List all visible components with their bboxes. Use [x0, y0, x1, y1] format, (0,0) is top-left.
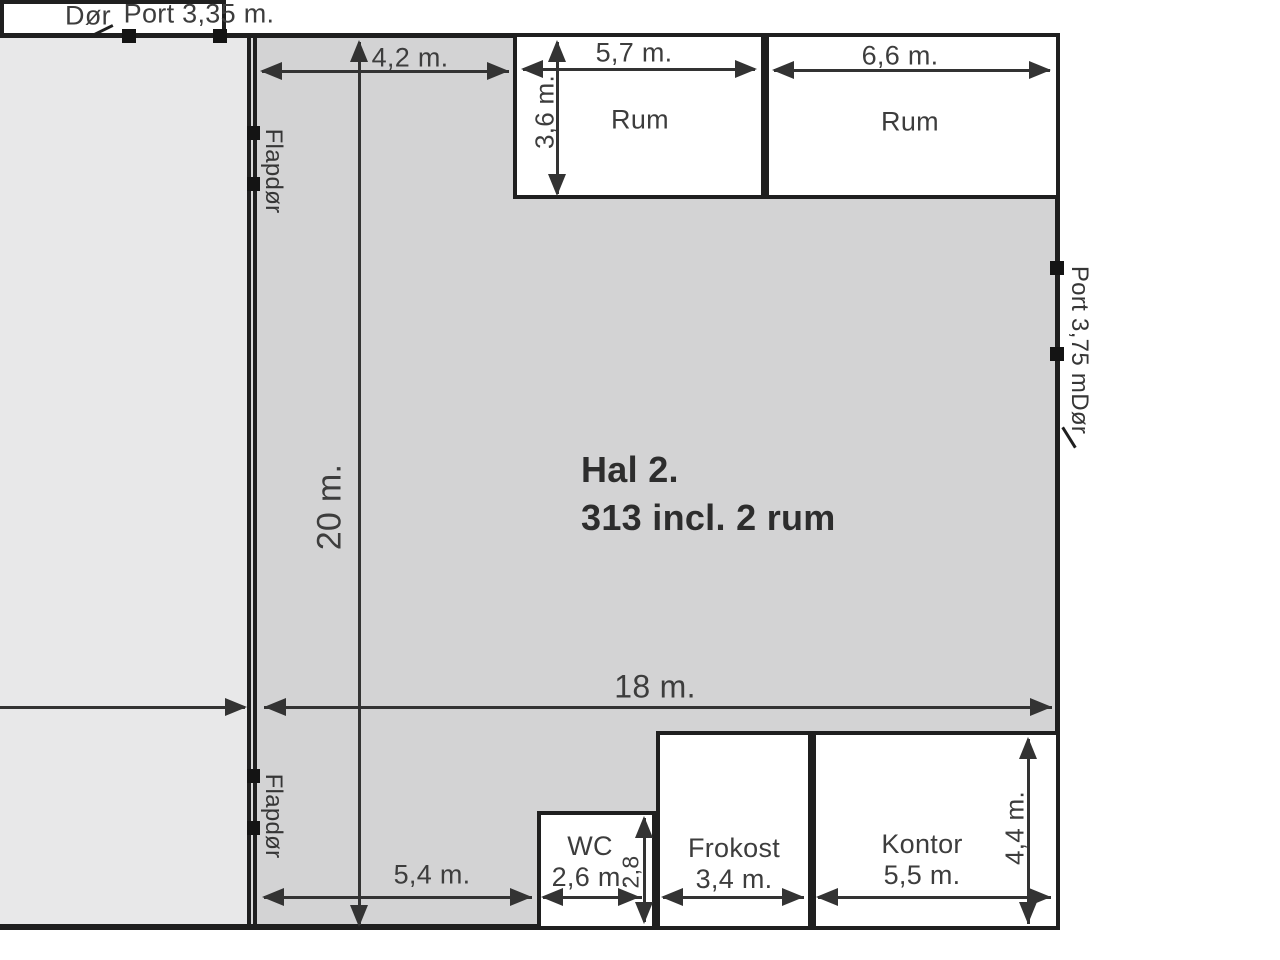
- arrow-right-icon: [782, 888, 804, 906]
- dim-rum-left-width-label: 5,7 m.: [596, 38, 673, 69]
- left-hall-area: [0, 33, 247, 930]
- arrow-right-icon: [225, 698, 247, 716]
- room-wc-label: WC 2,6 m.: [552, 831, 629, 893]
- arrow-down-icon: [1019, 902, 1037, 924]
- port-marker: [1050, 261, 1064, 275]
- room-frokost-label: Frokost 3,4 m.: [688, 833, 780, 895]
- dim-rum-left-depth-label: 3,6 m.: [530, 75, 561, 149]
- flapdoor-bottom-label: Flapdør: [259, 774, 287, 859]
- arrow-up-icon: [350, 40, 368, 62]
- room-rum-right-label: Rum: [881, 107, 939, 138]
- arrow-up-icon: [548, 40, 566, 62]
- arrow-left-icon: [772, 61, 794, 79]
- arrow-right-icon: [1030, 698, 1052, 716]
- room-rum-left-label: Rum: [611, 105, 669, 136]
- dim-kontor-depth-label: 4,4 m.: [1000, 791, 1031, 865]
- top-port-label: Port 3,35 m.: [124, 0, 275, 30]
- hall-title-block: Hal 2. 313 incl. 2 rum: [581, 446, 836, 542]
- arrow-up-icon: [635, 816, 653, 838]
- top-door-label: Dør: [65, 1, 111, 32]
- arrow-right-icon: [735, 60, 757, 78]
- arrow-left-icon: [816, 888, 838, 906]
- dim-line-hall-width: [264, 706, 1052, 709]
- arrow-right-icon: [487, 62, 509, 80]
- room-kontor-name: Kontor: [881, 829, 962, 860]
- dim-offset-bottom-label: 5,4 m.: [394, 860, 471, 891]
- arrow-left-icon: [262, 888, 284, 906]
- dim-line-hall-depth: [358, 42, 361, 925]
- dim-rum-right-width-label: 6,6 m.: [862, 41, 939, 72]
- room-frokost-name: Frokost: [688, 833, 780, 864]
- dim-line-offset-bottom: [264, 896, 532, 899]
- room-wc-name: WC: [552, 831, 629, 862]
- dim-hall-width-label: 18 m.: [614, 669, 696, 706]
- port-marker: [1050, 347, 1064, 361]
- arrow-left-icon: [264, 698, 286, 716]
- port-marker: [213, 29, 227, 43]
- port-marker: [122, 29, 136, 43]
- arrow-right-icon: [510, 888, 532, 906]
- right-port-door-label: Port 3,75 mDør: [1065, 266, 1093, 434]
- room-kontor-label: Kontor 5,5 m.: [881, 829, 962, 891]
- right-port-label: Port 3,75 m: [1066, 266, 1093, 393]
- dim-wc-width-label: 2,6 m.: [552, 862, 629, 893]
- right-door-label: Dør: [1066, 393, 1093, 434]
- arrow-down-icon: [635, 902, 653, 924]
- dim-line-kontor-width: [818, 896, 1051, 899]
- arrow-down-icon: [350, 905, 368, 927]
- dividing-wall: [247, 33, 257, 930]
- hall-subtitle: 313 incl. 2 rum: [581, 494, 836, 542]
- dim-line-left-hall-width: [0, 706, 245, 709]
- floor-plan: Dør Port 3,35 m. Flapdør Flapdør Port 3,…: [0, 0, 1280, 960]
- flapdoor-top-label: Flapdør: [259, 129, 287, 214]
- arrow-left-icon: [260, 62, 282, 80]
- arrow-up-icon: [1019, 737, 1037, 759]
- dim-kontor-width-label: 5,5 m.: [881, 860, 962, 891]
- dim-hall-depth-label: 20 m.: [311, 464, 350, 551]
- arrow-down-icon: [548, 174, 566, 196]
- arrow-right-icon: [1029, 61, 1051, 79]
- hall-title: Hal 2.: [581, 446, 836, 494]
- dim-frokost-width-label: 3,4 m.: [688, 864, 780, 895]
- dim-offset-top-label: 4,2 m.: [372, 43, 449, 74]
- arrow-left-icon: [661, 888, 683, 906]
